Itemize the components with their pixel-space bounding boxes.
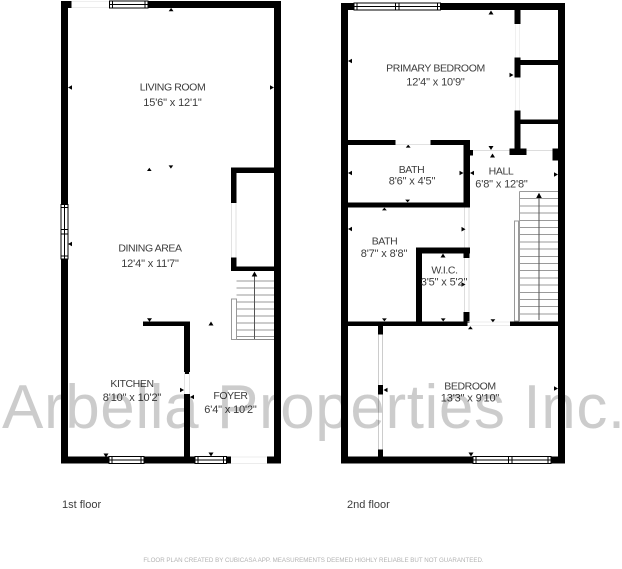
svg-text:8'6" x 4'5": 8'6" x 4'5" (389, 176, 436, 188)
svg-text:PRIMARY BEDROOM: PRIMARY BEDROOM (386, 63, 485, 75)
svg-text:2nd floor: 2nd floor (347, 499, 390, 511)
svg-text:FLOOR PLAN CREATED BY CUBICASA: FLOOR PLAN CREATED BY CUBICASA APP. MEAS… (143, 557, 484, 564)
svg-text:DINING AREA: DINING AREA (118, 243, 182, 255)
svg-text:12'4" x 11'7": 12'4" x 11'7" (121, 258, 179, 270)
svg-text:HALL: HALL (489, 166, 514, 178)
svg-text:1st floor: 1st floor (62, 499, 101, 511)
svg-text:BATH: BATH (399, 164, 425, 176)
svg-text:8'7" x 8'8": 8'7" x 8'8" (361, 248, 408, 260)
svg-text:BATH: BATH (372, 236, 398, 248)
svg-text:3'5" x 5'2": 3'5" x 5'2" (421, 277, 468, 289)
svg-text:LIVING ROOM: LIVING ROOM (140, 82, 206, 94)
svg-text:6'8" x 12'8": 6'8" x 12'8" (475, 179, 528, 191)
svg-text:12'4" x 10'9": 12'4" x 10'9" (406, 77, 465, 89)
svg-text:15'6" x 12'1": 15'6" x 12'1" (143, 97, 202, 109)
svg-text:Arbella Properties Inc.: Arbella Properties Inc. (2, 373, 622, 442)
svg-text:W.I.C.: W.I.C. (431, 265, 457, 277)
